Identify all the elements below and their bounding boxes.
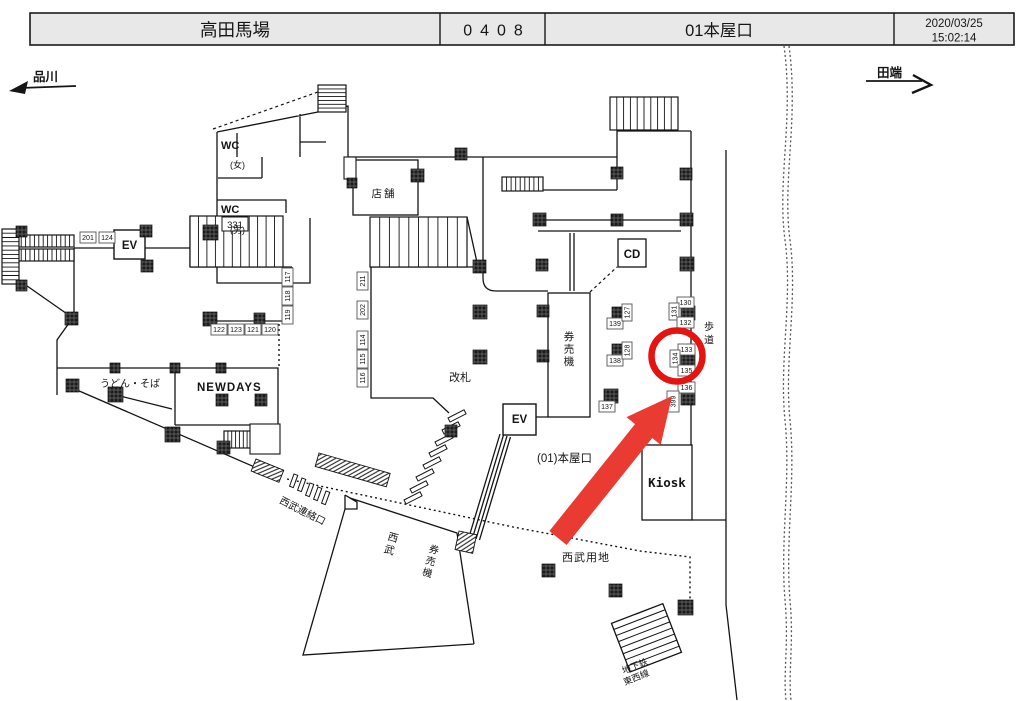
wc-men-label: WC: [221, 204, 239, 216]
pillar: [347, 178, 357, 188]
seibu-property-label: 西武用地: [562, 551, 610, 564]
stairs: [610, 97, 678, 130]
header-time: 15:02:14: [932, 33, 977, 45]
ticket-gates-group: [290, 410, 467, 505]
pillar: [473, 350, 487, 364]
svg-text:138: 138: [609, 358, 621, 365]
ticket-gate-label: 改札: [449, 370, 471, 384]
camera-label-116[interactable]: 116: [357, 369, 368, 387]
header-station-code: 0408: [463, 23, 531, 40]
header-date: 2020/03/25: [925, 18, 983, 30]
camera-label-121[interactable]: 121: [245, 324, 261, 335]
camera-label-138[interactable]: 138: [607, 355, 623, 366]
stair-331-label: 331: [227, 220, 243, 231]
pillar: [542, 564, 555, 577]
pillar: [165, 427, 180, 442]
seibu-gate: [314, 487, 322, 501]
pillar: [536, 259, 548, 271]
pillar: [16, 280, 27, 291]
pillar: [445, 425, 457, 437]
ticket-gate: [404, 492, 422, 504]
pillar: [140, 225, 152, 237]
svg-text:117: 117: [285, 271, 292, 282]
pillar: [473, 305, 487, 319]
shop-label: 店舗: [372, 187, 397, 200]
pillar: [680, 168, 692, 180]
small-room: [250, 424, 280, 454]
stairs: [370, 217, 467, 267]
svg-text:133: 133: [681, 347, 693, 354]
direction-left-label: 品川: [33, 70, 58, 84]
ticket-gate: [416, 469, 434, 481]
pillar: [65, 312, 78, 325]
camera-label-139[interactable]: 139: [607, 318, 623, 329]
pillar: [537, 350, 549, 362]
direction-shinagawa: 品川: [9, 70, 76, 94]
svg-text:132: 132: [680, 320, 692, 327]
svg-text:139: 139: [609, 321, 621, 328]
pillar: [678, 600, 693, 615]
seibu-gate: [290, 474, 298, 488]
svg-text:120: 120: [264, 327, 276, 334]
svg-text:124: 124: [101, 235, 113, 242]
pillar: [110, 363, 120, 373]
elevator-center-label: EV: [512, 414, 528, 426]
camera-label-132[interactable]: 132: [677, 317, 694, 328]
camera-label-133[interactable]: 133: [678, 344, 695, 355]
exit-name-label: (01)本屋口: [537, 451, 592, 465]
seibu-connection-label: 西武連絡口: [277, 494, 327, 528]
svg-text:114: 114: [360, 334, 367, 345]
pillar: [217, 441, 230, 454]
header-station-name: 高田馬場: [200, 20, 270, 40]
camera-label-117[interactable]: 117: [282, 268, 293, 286]
svg-text:202: 202: [360, 304, 367, 316]
pillar: [16, 226, 27, 237]
svg-text:130: 130: [680, 300, 692, 307]
pillar: [66, 379, 79, 392]
pillar: [680, 257, 694, 271]
svg-text:118: 118: [285, 290, 292, 301]
camera-label-128[interactable]: 128: [622, 342, 632, 359]
stairs: [318, 85, 346, 112]
camera-label-202[interactable]: 202: [357, 301, 368, 319]
camera-label-120[interactable]: 120: [262, 324, 278, 335]
pillar: [255, 394, 267, 406]
svg-text:134: 134: [673, 353, 680, 365]
cd-label: CD: [624, 249, 641, 261]
right-arrow-icon: [912, 75, 931, 93]
pillar: [680, 213, 693, 226]
pillar: [455, 148, 467, 160]
ticket-machines-label: 券売機: [564, 330, 575, 368]
ticket-gate: [448, 410, 466, 422]
seibu-ticket-machines-label: 券売機: [421, 542, 441, 580]
svg-text:122: 122: [213, 327, 225, 334]
hatched-block: [455, 531, 477, 553]
elevator-west-label: EV: [122, 240, 138, 252]
seibu-label: 西武: [383, 531, 400, 558]
camera-label-114[interactable]: 114: [357, 331, 368, 349]
header-location-name: 01本屋口: [685, 21, 753, 40]
camera-label-119[interactable]: 119: [282, 306, 293, 324]
camera-label-118[interactable]: 118: [282, 287, 293, 305]
wc-women-label: WC: [221, 140, 239, 152]
svg-text:123: 123: [230, 327, 242, 334]
svg-text:137: 137: [601, 404, 613, 411]
newdays-label: NEWDAYS: [197, 382, 262, 394]
pillar: [254, 313, 265, 324]
hatched-block: [315, 453, 390, 487]
svg-text:127: 127: [625, 307, 632, 319]
udon-soba-label: うどん・そば: [100, 378, 160, 390]
pillar: [170, 363, 180, 373]
pillar: [203, 225, 218, 240]
pillar: [411, 169, 424, 182]
ticket-gate: [423, 457, 441, 469]
seibu-gate: [306, 483, 314, 497]
pillar: [216, 363, 226, 373]
svg-text:128: 128: [625, 345, 632, 357]
station-floor-plan: 高田馬場 0408 01本屋口 2020/03/25 15:02:14 品川 田…: [0, 0, 1024, 701]
pillar: [537, 305, 549, 317]
camera-label-130[interactable]: 130: [677, 297, 694, 308]
seibu-gate: [298, 478, 306, 492]
pillar: [533, 213, 546, 226]
header-bar: 高田馬場 0408 01本屋口 2020/03/25 15:02:14: [30, 13, 1014, 45]
ticket-gate: [429, 445, 447, 457]
pillar: [216, 394, 228, 406]
stairs: [502, 177, 543, 191]
camera-label-211[interactable]: 211: [357, 272, 368, 290]
svg-text:115: 115: [360, 353, 367, 364]
pillar: [611, 167, 623, 179]
svg-text:201: 201: [82, 235, 94, 242]
svg-text:211: 211: [360, 275, 367, 286]
svg-text:131: 131: [672, 306, 679, 318]
camera-label-127[interactable]: 127: [622, 304, 632, 321]
ticket-gate: [410, 481, 428, 493]
camera-label-124[interactable]: 124: [99, 232, 115, 243]
sidewalk-label: 歩道: [704, 320, 714, 347]
seibu-gate: [322, 491, 330, 505]
camera-label-201[interactable]: 201: [80, 232, 96, 243]
hatched-block: [251, 459, 284, 482]
wc-women-sub: (女): [230, 159, 245, 170]
camera-label-122[interactable]: 122: [211, 324, 227, 335]
camera-label-123[interactable]: 123: [228, 324, 244, 335]
svg-text:136: 136: [681, 385, 693, 392]
road-boundary: [783, 46, 793, 700]
pillar: [609, 584, 622, 597]
direction-tabata: 田端: [866, 65, 931, 93]
wall-pier: [344, 157, 356, 179]
svg-text:116: 116: [360, 372, 367, 383]
direction-right-label: 田端: [877, 65, 903, 80]
svg-text:119: 119: [285, 309, 292, 320]
camera-label-134[interactable]: 134: [670, 350, 680, 367]
camera-label-115[interactable]: 115: [357, 350, 368, 368]
pillar: [611, 214, 623, 226]
kiosk-label: Kiosk: [648, 475, 686, 490]
camera-label-137[interactable]: 137: [599, 401, 615, 412]
svg-text:121: 121: [247, 327, 259, 334]
pillar: [473, 260, 486, 273]
pillar: [141, 260, 153, 272]
left-arrow-icon: [9, 81, 28, 94]
